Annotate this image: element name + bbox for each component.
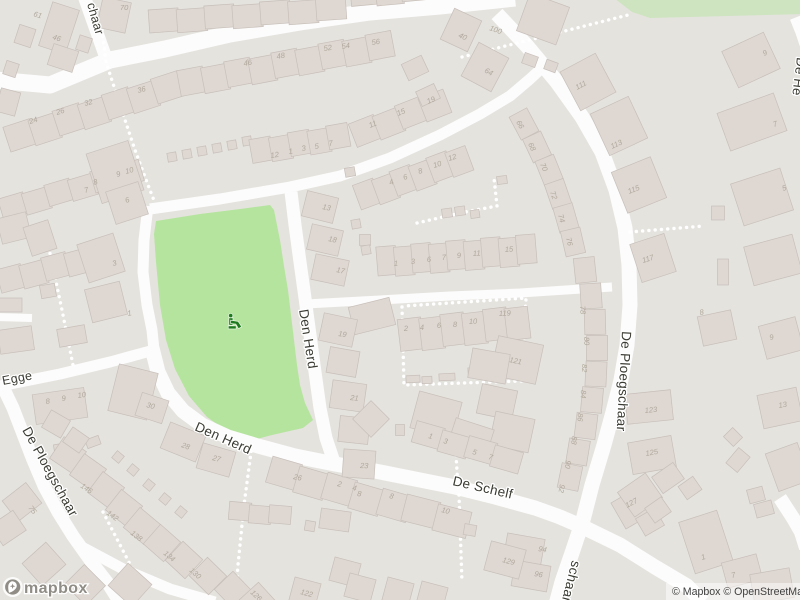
- svg-text:80: 80: [582, 337, 591, 346]
- svg-text:119: 119: [499, 308, 512, 318]
- svg-text:86: 86: [575, 413, 585, 423]
- svg-text:94: 94: [538, 544, 548, 554]
- svg-text:78: 78: [578, 306, 588, 316]
- svg-text:123: 123: [644, 405, 658, 415]
- svg-text:© Mapbox © OpenStreetMap: © Mapbox © OpenStreetMap: [672, 586, 800, 598]
- svg-text:70: 70: [120, 3, 129, 12]
- svg-text:10: 10: [469, 317, 479, 326]
- svg-text:15: 15: [505, 244, 515, 254]
- svg-text:21: 21: [349, 393, 359, 403]
- svg-text:54: 54: [341, 41, 351, 51]
- svg-text:mapbox: mapbox: [24, 580, 88, 597]
- svg-text:4: 4: [420, 323, 425, 332]
- svg-text:23: 23: [359, 461, 369, 470]
- svg-text:11: 11: [473, 248, 481, 258]
- svg-text:84: 84: [579, 390, 588, 399]
- svg-text:1: 1: [394, 259, 399, 268]
- svg-text:82: 82: [580, 364, 589, 373]
